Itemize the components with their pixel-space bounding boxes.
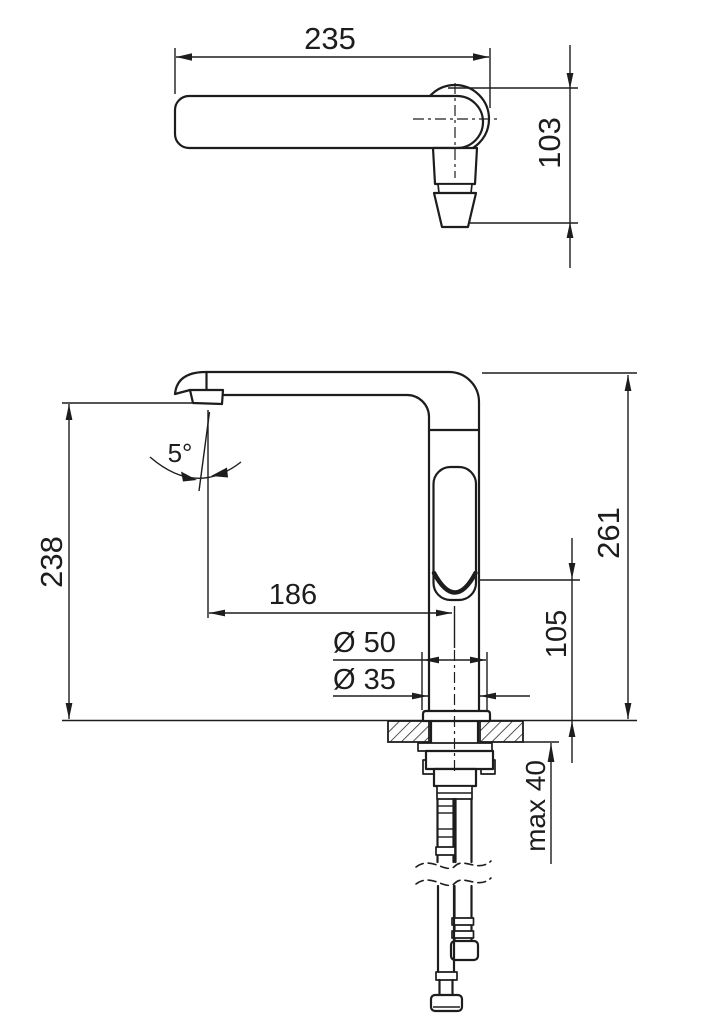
aerator-outlet (190, 390, 223, 404)
faucet-dimension-drawing: 235 103 5° (0, 0, 715, 1024)
supply-hoses-lower (431, 886, 478, 1011)
dimension-dia-35: Ø 35 (333, 664, 530, 699)
faucet-inner-outline (223, 395, 429, 711)
spout-body-profile (175, 96, 483, 148)
dim-186-label: 186 (269, 579, 317, 611)
dim-235-label: 235 (304, 21, 356, 56)
handle-lever (434, 573, 476, 593)
front-view: 5° 238 186 (34, 372, 637, 1011)
nozzle-cone (434, 193, 476, 227)
dim-261-label: 261 (591, 507, 626, 559)
dim-dia50-label: Ø 50 (333, 627, 396, 659)
base-flange (423, 711, 490, 721)
dim-105-label: 105 (541, 610, 573, 658)
dim-angle-label: 5° (168, 438, 193, 468)
dim-dia35-label: Ø 35 (333, 664, 396, 696)
nozzle-groove (438, 184, 472, 193)
counter-section-right (480, 721, 523, 742)
dim-max40-label: max 40 (520, 760, 551, 852)
mounting-nut (426, 751, 493, 769)
dimension-angle-5deg: 5° (150, 410, 241, 618)
spout-cap-bottom (175, 390, 190, 394)
hose-end-fitting (431, 995, 462, 1011)
technical-drawing-page: 235 103 5° (0, 0, 715, 1024)
dim-103-label: 103 (532, 117, 567, 169)
counter-section-left (388, 721, 429, 742)
break-line-lower (416, 878, 491, 885)
dimension-max-40: max 40 (520, 742, 559, 864)
side-profile-view: 235 103 (175, 21, 578, 268)
dimension-186: 186 (209, 579, 452, 616)
dim-238-label: 238 (34, 536, 69, 588)
shank-adapter (434, 769, 476, 786)
supply-hoses-upper (436, 799, 472, 862)
dimension-261: 261 (482, 373, 637, 719)
